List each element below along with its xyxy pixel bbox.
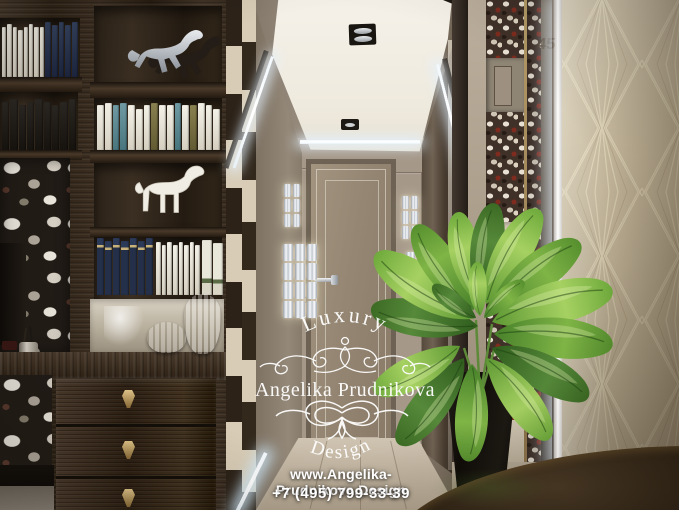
book-spine	[190, 105, 197, 150]
book-spine	[113, 238, 120, 295]
crystal-cell	[293, 199, 300, 212]
book-spine	[40, 27, 44, 77]
vase-reflection	[104, 306, 144, 346]
book-set-navy	[97, 238, 153, 295]
book-set-white	[156, 242, 200, 295]
book-spine	[105, 241, 112, 295]
cove-light-far	[300, 140, 420, 144]
spot-lamp	[353, 27, 371, 34]
book-spine	[202, 240, 212, 295]
book-spine	[60, 102, 67, 153]
book-spine	[121, 241, 128, 295]
book-spine	[2, 102, 9, 153]
white-horse-figurine	[132, 161, 222, 225]
book-spine	[35, 99, 42, 153]
shelf-board	[0, 77, 82, 92]
book-spine	[213, 243, 223, 295]
drawer-unit	[56, 378, 216, 510]
book-spine	[175, 103, 182, 150]
book-spine	[120, 103, 127, 150]
book-spine	[24, 27, 28, 77]
crystal-cell	[293, 184, 300, 197]
book-spine	[156, 242, 161, 295]
book-spine	[128, 105, 135, 150]
book-spine	[13, 27, 17, 77]
book-spine	[179, 242, 184, 295]
watermark-designer-name: Angelika Prudnikova	[255, 379, 435, 401]
book-spine	[105, 103, 112, 150]
watermark-word-luxury: Luxury	[297, 302, 392, 337]
book-spine	[52, 25, 58, 77]
mineral-art-panel	[0, 375, 52, 467]
book-spine	[44, 102, 51, 153]
book-spine	[198, 103, 205, 150]
book-spine	[167, 105, 174, 150]
mirror-gap	[486, 58, 524, 112]
drawer-seam	[56, 476, 216, 479]
footer-phone: +7 (495) 799-33-39	[228, 485, 454, 502]
watermark-logo: Luxury Angelika Prudnikova Design	[230, 288, 470, 474]
book-spine	[146, 238, 153, 295]
drawer-seam	[56, 424, 216, 427]
book-spine	[173, 245, 178, 295]
book-spine	[2, 27, 6, 77]
crystal-cell	[284, 214, 291, 227]
crystal-cell	[307, 263, 317, 280]
book-spine	[45, 22, 51, 77]
book-spine	[34, 27, 38, 77]
crystal-cell	[284, 184, 291, 197]
book-spine	[136, 109, 143, 150]
book-spine	[29, 24, 33, 77]
crystal-cell	[295, 244, 305, 261]
book-spine	[184, 245, 189, 295]
crystal-cell	[295, 263, 305, 280]
book-spine	[144, 105, 151, 150]
book-spine	[59, 22, 65, 77]
book-spine	[138, 241, 145, 295]
book-spine	[10, 99, 17, 153]
book-spine	[213, 109, 220, 150]
book-spine	[190, 242, 195, 295]
book-spine	[206, 105, 213, 150]
horse-figurines	[126, 26, 220, 82]
ceiling-spotlight-far	[341, 119, 359, 130]
book-pair	[202, 240, 223, 295]
book-spine	[130, 238, 137, 295]
watermark-flourish-bottom	[276, 401, 408, 439]
book-spine	[7, 24, 11, 77]
crystal-cell	[283, 244, 293, 261]
book-spine	[97, 105, 104, 150]
book-spine	[65, 25, 71, 77]
book-spine	[162, 245, 167, 295]
book-spine	[52, 105, 59, 153]
book-row-white	[2, 24, 44, 77]
pumpkin-vase	[147, 322, 186, 353]
spot-lamp	[345, 123, 355, 127]
crystal-cell	[284, 199, 291, 212]
book-spine	[167, 242, 172, 295]
book-spine	[27, 102, 34, 153]
book-spine	[151, 103, 158, 150]
desk-item	[2, 341, 17, 350]
book-spine	[195, 245, 200, 295]
book-spine	[72, 22, 78, 77]
book-spine	[182, 105, 189, 150]
book-spine	[69, 99, 76, 153]
book-row-black	[2, 99, 76, 153]
shelf-board	[90, 82, 226, 98]
book-row-mixed	[97, 103, 220, 150]
book-spine	[113, 105, 120, 150]
interior-render: 45	[0, 0, 679, 510]
ceiling-spotlight	[349, 24, 377, 46]
shelf-board	[90, 227, 226, 237]
door-handle-rose	[331, 275, 338, 285]
monitor-back	[0, 243, 26, 345]
reflected-door	[494, 66, 512, 106]
crystal-cell	[293, 214, 300, 227]
crystal-cell	[283, 263, 293, 280]
floor-left	[0, 486, 54, 510]
watermark-flourish-top	[260, 338, 430, 374]
tall-vase	[184, 294, 221, 354]
crystal-cell	[307, 244, 317, 261]
book-spine	[19, 105, 26, 153]
crystal-sconce	[284, 184, 300, 227]
book-row-navy	[45, 22, 78, 77]
book-spine	[159, 105, 166, 150]
book-spine	[18, 30, 22, 77]
book-spine	[97, 238, 104, 295]
spot-lamp	[354, 35, 372, 42]
